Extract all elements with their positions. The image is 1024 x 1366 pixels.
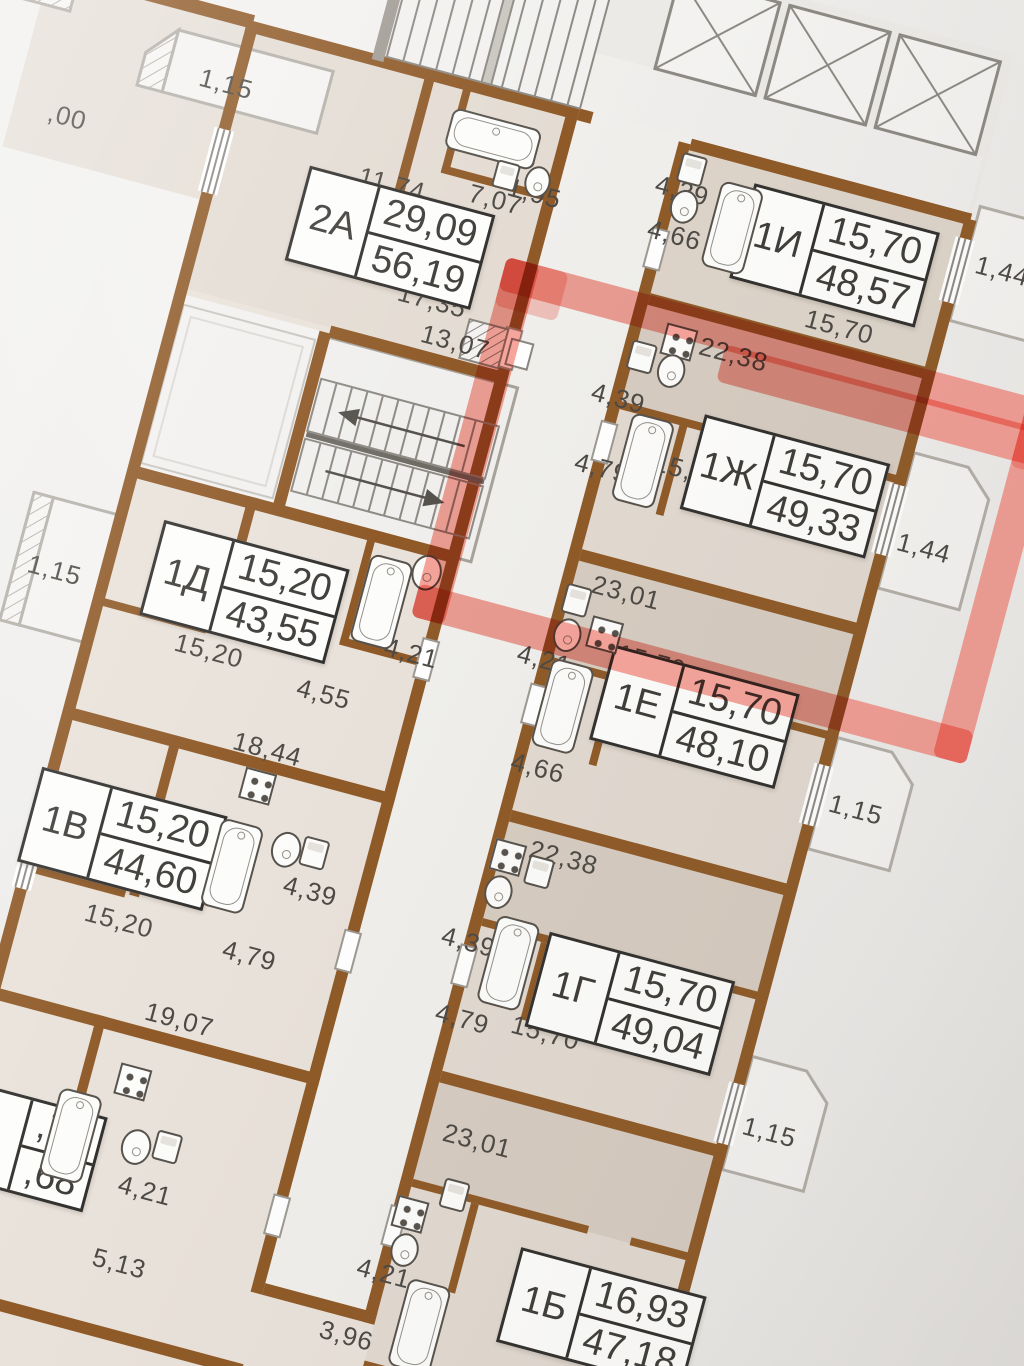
floor-plan: ,001,1511,743,861,957,0717,3513,074,394,… — [0, 0, 1024, 1366]
floorplan-photo: ,001,1511,743,861,957,0717,3513,074,394,… — [0, 0, 1024, 1366]
